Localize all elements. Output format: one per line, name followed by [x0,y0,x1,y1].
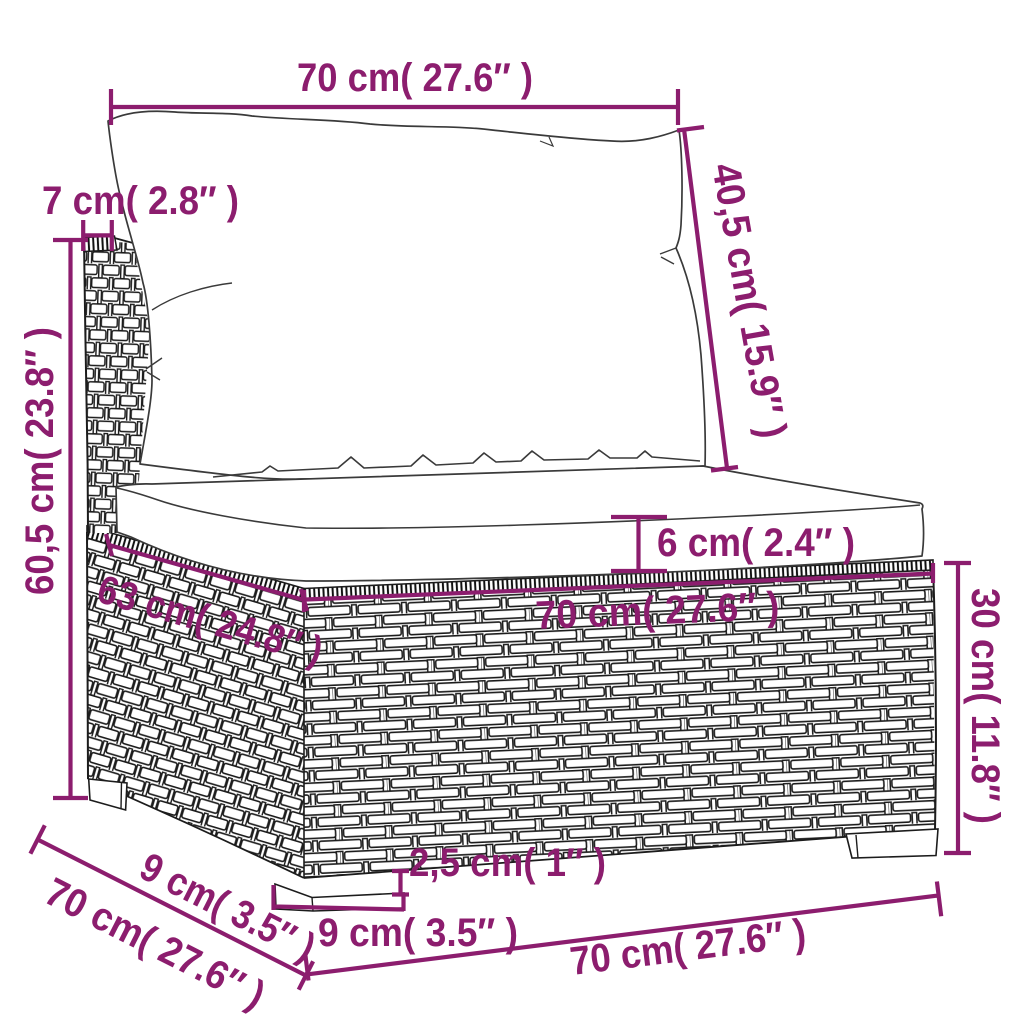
svg-text:70 cm( 27.6″ ): 70 cm( 27.6″ ) [297,56,533,100]
svg-text:6 cm( 2.4″ ): 6 cm( 2.4″ ) [657,521,855,565]
svg-text:70 cm( 27.6″ ): 70 cm( 27.6″ ) [568,911,809,984]
svg-text:9 cm( 3.5″ ): 9 cm( 3.5″ ) [318,911,518,955]
svg-text:7 cm( 2.8″ ): 7 cm( 2.8″ ) [42,179,239,223]
svg-text:60,5 cm( 23.8″ ): 60,5 cm( 23.8″ ) [18,327,62,595]
svg-text:2,5 cm( 1″ ): 2,5 cm( 1″ ) [409,841,606,885]
svg-text:30 cm( 11.8″ ): 30 cm( 11.8″ ) [963,588,1007,824]
